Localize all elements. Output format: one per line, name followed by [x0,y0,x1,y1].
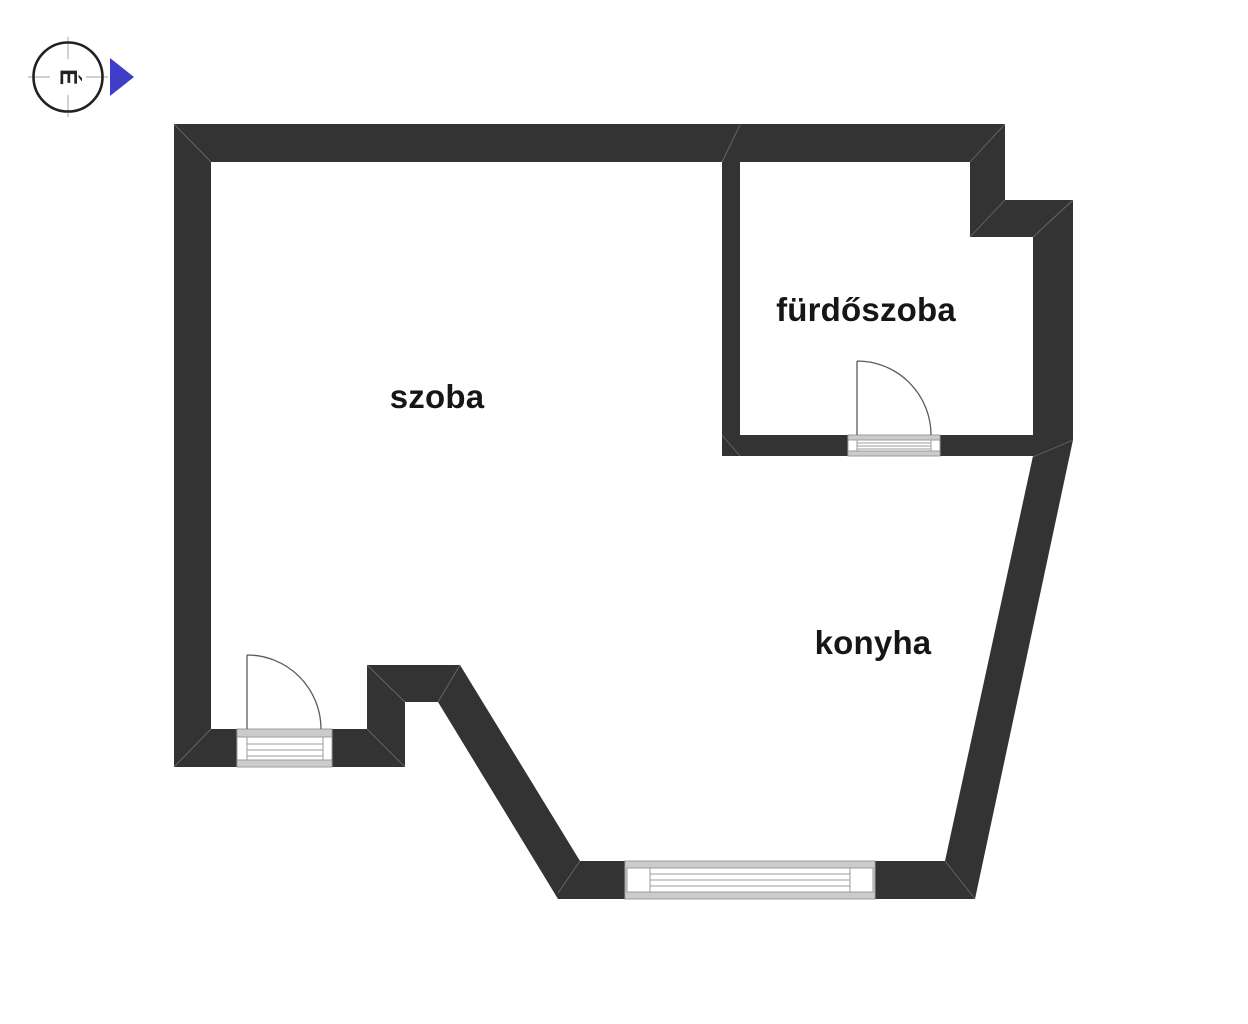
bathroom-door [848,361,940,456]
walls [174,124,1073,899]
floor-plan-drawing: É [0,0,1248,1024]
north-arrow-icon [110,58,134,96]
szoba-door-swing [247,655,321,729]
compass-north-letter: É [55,69,83,85]
floor-plan-page: É szoba fürdőszoba konyha [0,0,1248,1024]
wall-miter-seams [174,124,1073,899]
window-bottom [625,861,875,899]
compass-rose-icon: É [28,37,134,117]
szoba-door [237,655,332,767]
room-label-konyha: konyha [815,624,932,662]
bathroom-door-swing [857,361,931,435]
room-label-furdoszoba: fürdőszoba [776,291,956,329]
szoba-door-threshold [237,729,332,767]
bathroom-door-threshold [848,435,940,456]
room-label-szoba: szoba [390,378,485,416]
